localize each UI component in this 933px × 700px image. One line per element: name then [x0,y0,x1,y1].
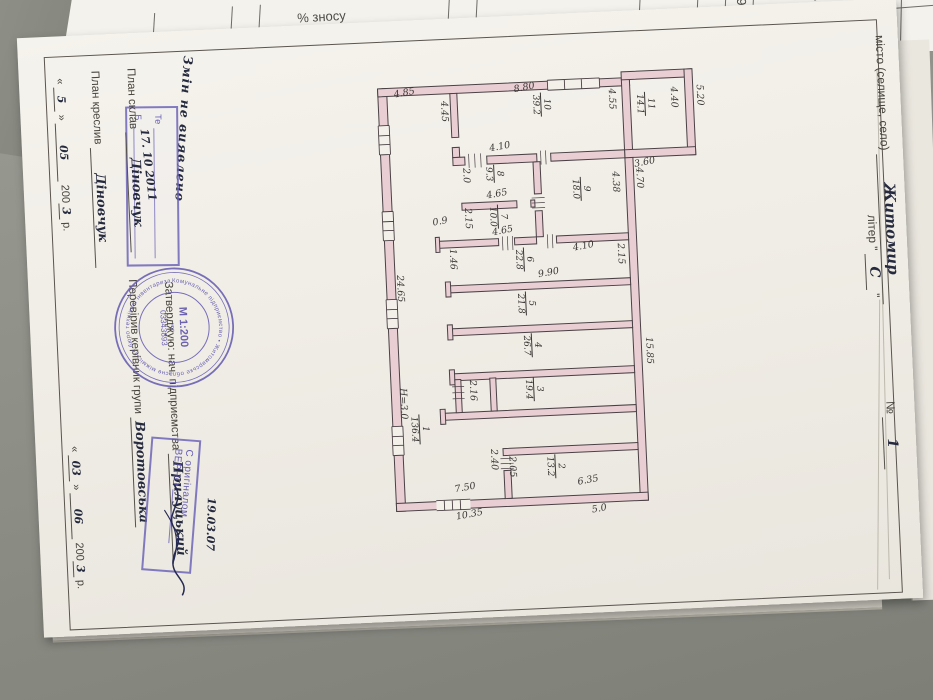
date2-year-unit: р. [74,580,86,590]
room-label-2: 213.2 [544,454,565,479]
city-label: місто (селище, село) [873,35,892,151]
dimension-label: 7.50 [454,482,477,495]
number-value-handwritten: 1 [884,438,900,448]
dimension-label: 4.10 [572,240,595,253]
floor-plan-labels: 1039.21114.189.3918.0710.0622.8521.8426.… [358,38,739,534]
number-label: № [883,401,898,414]
room-label-9: 918.0 [570,176,591,201]
date1-year-handwritten: 3 [60,207,73,215]
quote-mark: « [68,446,80,453]
date1-year-unit: р. [60,222,72,232]
date1-year-prefix: 200 [59,184,72,203]
liter-label: літер [865,214,880,243]
dimension-label: 2.05 [507,456,517,478]
room-label-8: 89.3 [483,164,504,183]
dimension-label: 4.85 [393,87,416,100]
room-label-4: 426.7 [521,333,542,358]
dimension-label: 6.35 [577,474,600,487]
liter-quote: " [866,246,880,251]
plan-made-label: План склав [124,68,139,130]
plan-drawn-label: План креслив [88,71,103,145]
quote-mark: » [55,114,67,121]
room-label-5: 521.8 [515,291,536,316]
dimension-label: 0.9 [432,216,449,228]
room-label-10: 1039.2 [530,92,551,117]
city-value-handwritten: Житомир [880,182,902,275]
date1-day-handwritten: 5 [55,95,68,103]
date2-month-handwritten: 06 [71,508,85,524]
dimension-label: 2.0 [461,168,471,184]
dimension-label: 2.40 [488,449,498,471]
dimension-label: 4.38 [610,171,620,193]
dimension-label: 1.46 [447,249,457,271]
dimension-label: 5.20 [694,84,704,106]
photographed-document: % зносу Середній % зносу 9 місто (селище… [0,0,933,700]
quote-mark: » [70,484,82,491]
dimension-label: 4.55 [606,88,616,110]
dimension-label: 4.70 [634,167,644,189]
room-label-3: 319.4 [523,377,544,402]
floor-plan-sheet: місто (селище, село) Житомир літер " С "… [17,0,923,638]
verification-date-handwritten: 19.03.07 [204,497,218,551]
dimension-label: 4.65 [486,188,509,201]
plan-made-value-handwritten: Діновчук [127,157,145,227]
room-label-11: 1114.1 [634,91,655,116]
date1-month-handwritten: 05 [57,145,71,161]
number-field: № 1 [881,401,901,470]
date2-day-handwritten: 03 [69,460,83,476]
dimension-label: 24.65 [394,275,405,303]
quote-mark: « [54,78,66,85]
dimension-label: 2.15 [463,208,473,230]
stamp-code: 03343893 [158,310,169,347]
date2-year-prefix: 200 [73,542,86,561]
room-label-6: 622.8 [513,247,534,272]
dimension-label: 4.45 [439,101,449,123]
dimension-label: 15.85 [644,337,655,365]
verification-signature [157,479,196,600]
room-label-1: 1136.4 [408,414,429,445]
date2-year-handwritten: 3 [74,565,87,573]
stamp-code-label: код [169,323,175,333]
liter-value-handwritten: С [866,266,882,278]
stamp-scale: М 1:200 [176,307,190,348]
dimension-label: 2.15 [615,243,625,265]
dimension-label: 9.90 [537,267,560,280]
dimension-label: 4.10 [489,141,512,154]
round-official-stamp: Комунальне підприємство • Житомирське об… [107,261,241,395]
dimension-label: 4.40 [668,86,678,108]
dimension-label: 10.35 [455,508,483,522]
liter-quote: " [868,293,882,298]
dimension-label: 2.16 [467,380,477,402]
plan-drawn-value-handwritten: Діновчук [92,173,110,243]
dimension-label: 5.0 [591,503,608,515]
inspection-stamp-line1: Те [153,114,163,124]
dimension-label: Н=3.0 [398,388,409,420]
dimension-label: 4.65 [491,225,514,238]
floor-plan-drawing: 1039.21114.189.3918.0710.0622.8521.8426.… [358,38,739,534]
